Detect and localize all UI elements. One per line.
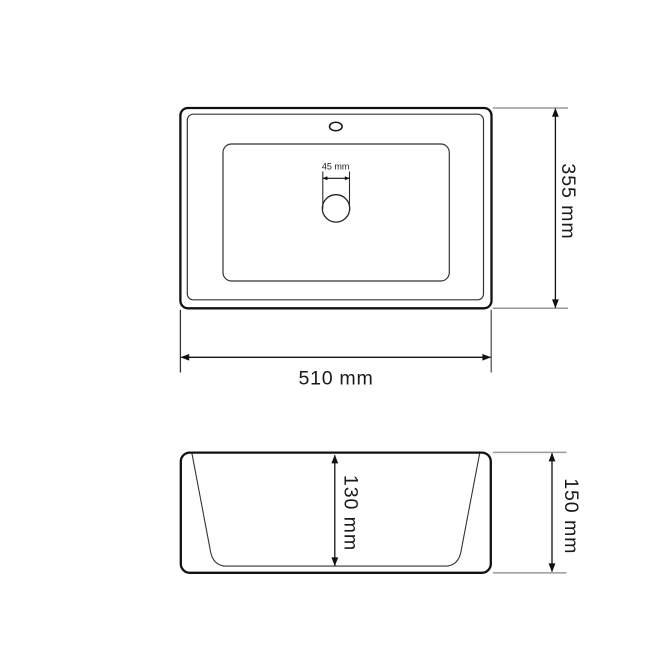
svg-text:45 mm: 45 mm bbox=[322, 162, 350, 172]
svg-text:355 mm: 355 mm bbox=[557, 163, 579, 239]
svg-text:130 mm: 130 mm bbox=[340, 475, 362, 551]
svg-text:150 mm: 150 mm bbox=[560, 478, 582, 554]
svg-text:510 mm: 510 mm bbox=[299, 367, 374, 389]
